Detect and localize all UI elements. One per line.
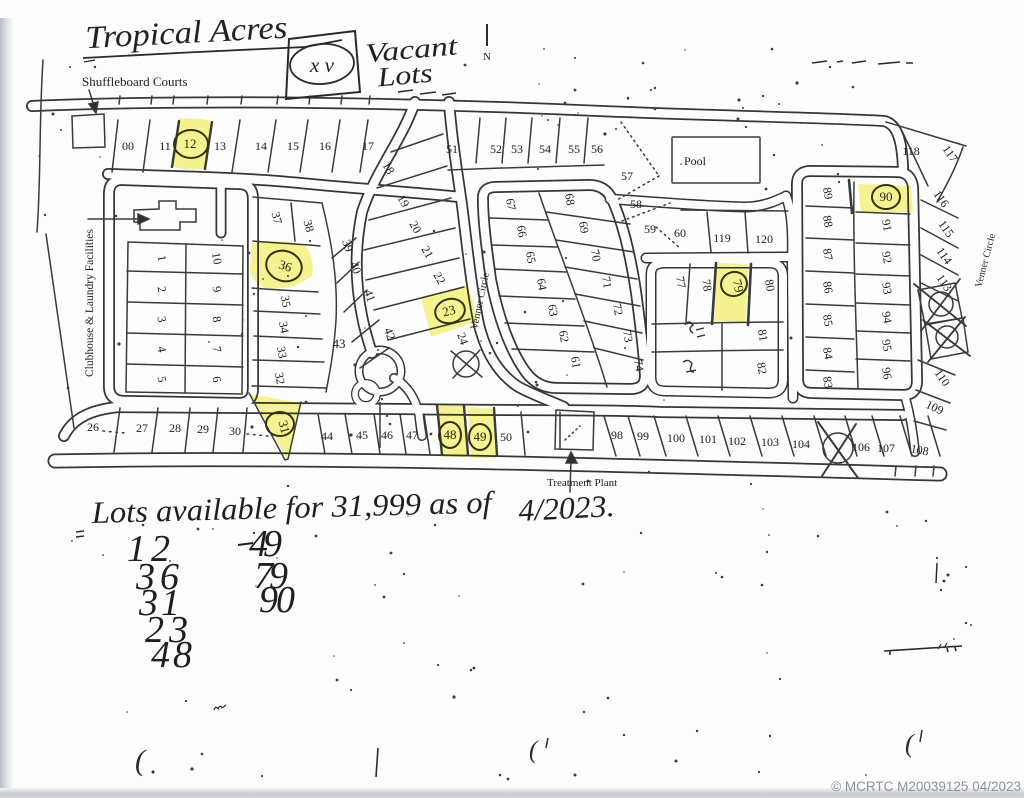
svg-text:Clubhouse & Laundry Facilities: Clubhouse & Laundry Facilities <box>84 229 96 377</box>
svg-text:49: 49 <box>474 429 487 444</box>
svg-text:100: 100 <box>667 431 685 445</box>
svg-text:104: 104 <box>792 437 810 451</box>
svg-text:62: 62 <box>556 329 572 343</box>
svg-text:44: 44 <box>321 429 333 443</box>
svg-text:92: 92 <box>879 250 895 264</box>
svg-text:119: 119 <box>713 231 731 245</box>
svg-text:16: 16 <box>319 139 331 153</box>
svg-text:120: 120 <box>755 232 773 246</box>
svg-text:59: 59 <box>644 222 656 236</box>
svg-text:81: 81 <box>755 328 771 342</box>
svg-text:107: 107 <box>877 441 895 455</box>
svg-text:52: 52 <box>490 142 502 156</box>
svg-text:51: 51 <box>446 142 458 156</box>
svg-text:34: 34 <box>276 320 292 334</box>
svg-text:102: 102 <box>728 434 746 448</box>
svg-text:11: 11 <box>159 139 171 153</box>
svg-text:12: 12 <box>184 136 197 151</box>
svg-text:87: 87 <box>820 247 836 261</box>
svg-text:64: 64 <box>534 277 550 291</box>
svg-text:101: 101 <box>699 432 717 446</box>
svg-text:17: 17 <box>362 139 374 153</box>
svg-text:© MCRTC M20039125 04/2023: © MCRTC M20039125 04/2023 <box>831 779 1021 794</box>
svg-text:86: 86 <box>820 280 836 294</box>
svg-text:70: 70 <box>588 248 604 262</box>
svg-text:33: 33 <box>274 345 290 359</box>
svg-text:85: 85 <box>820 313 836 327</box>
svg-text:60: 60 <box>674 226 686 240</box>
svg-text:47: 47 <box>406 428 418 442</box>
svg-text:94: 94 <box>879 310 895 324</box>
svg-text:88: 88 <box>820 214 836 228</box>
svg-text:x v: x v <box>309 53 335 77</box>
svg-text:4/2023.: 4/2023. <box>518 488 616 528</box>
svg-text:Pool: Pool <box>684 154 707 168</box>
svg-text:13: 13 <box>214 139 226 153</box>
svg-text:103: 103 <box>761 435 779 449</box>
svg-text:66: 66 <box>514 224 530 238</box>
svg-text:96: 96 <box>879 366 895 380</box>
svg-text:98: 98 <box>611 428 623 442</box>
svg-text:Treatment Plant: Treatment Plant <box>547 477 617 489</box>
svg-text:106: 106 <box>852 440 870 454</box>
svg-text:43: 43 <box>333 336 346 351</box>
svg-text:90: 90 <box>880 189 893 204</box>
svg-text:72: 72 <box>610 302 626 316</box>
svg-text:00: 00 <box>122 139 134 153</box>
svg-text:73: 73 <box>620 329 636 343</box>
svg-text:84: 84 <box>820 346 836 360</box>
svg-text:15: 15 <box>287 139 299 153</box>
svg-text:63: 63 <box>545 303 561 317</box>
svg-text:71: 71 <box>599 275 615 289</box>
svg-text:56: 56 <box>591 142 603 156</box>
svg-text:57: 57 <box>621 169 633 183</box>
svg-text:(: ( <box>905 729 915 758</box>
svg-text:45: 45 <box>356 428 368 442</box>
svg-text:32: 32 <box>272 371 288 385</box>
svg-text:10: 10 <box>209 251 225 265</box>
svg-text:26: 26 <box>87 420 99 434</box>
svg-text:77: 77 <box>673 275 689 289</box>
svg-text:78: 78 <box>699 278 715 292</box>
svg-text:14: 14 <box>255 139 267 153</box>
svg-text:68: 68 <box>562 192 578 206</box>
svg-text:90: 90 <box>259 579 295 621</box>
svg-text:N: N <box>483 51 491 63</box>
svg-text:89: 89 <box>820 186 836 200</box>
svg-text:83: 83 <box>820 375 836 389</box>
svg-text:67: 67 <box>503 197 519 211</box>
svg-text:74: 74 <box>631 358 647 372</box>
svg-text:53: 53 <box>511 142 523 156</box>
svg-text:91: 91 <box>879 218 895 232</box>
svg-text:Shuffleboard Courts: Shuffleboard Courts <box>82 74 188 89</box>
svg-text:80: 80 <box>762 278 778 292</box>
svg-text:35: 35 <box>278 294 294 308</box>
svg-text:93: 93 <box>879 281 895 295</box>
svg-text:46: 46 <box>381 428 393 442</box>
svg-text:28: 28 <box>169 421 181 435</box>
svg-text:48: 48 <box>444 427 457 442</box>
svg-text:58: 58 <box>630 197 642 211</box>
svg-text:95: 95 <box>879 338 895 352</box>
svg-text:82: 82 <box>754 361 770 375</box>
svg-text:27: 27 <box>136 421 148 435</box>
svg-text:54: 54 <box>539 142 551 156</box>
svg-text:61: 61 <box>568 355 584 369</box>
svg-text:55: 55 <box>568 142 580 156</box>
svg-text:30: 30 <box>229 424 241 438</box>
svg-text:29: 29 <box>197 422 209 436</box>
svg-text:69: 69 <box>576 220 592 234</box>
svg-text:50: 50 <box>500 430 512 444</box>
svg-text:Lots: Lots <box>375 58 434 93</box>
svg-text:118: 118 <box>902 144 920 158</box>
svg-text:65: 65 <box>523 250 539 264</box>
svg-text:99: 99 <box>637 429 649 443</box>
